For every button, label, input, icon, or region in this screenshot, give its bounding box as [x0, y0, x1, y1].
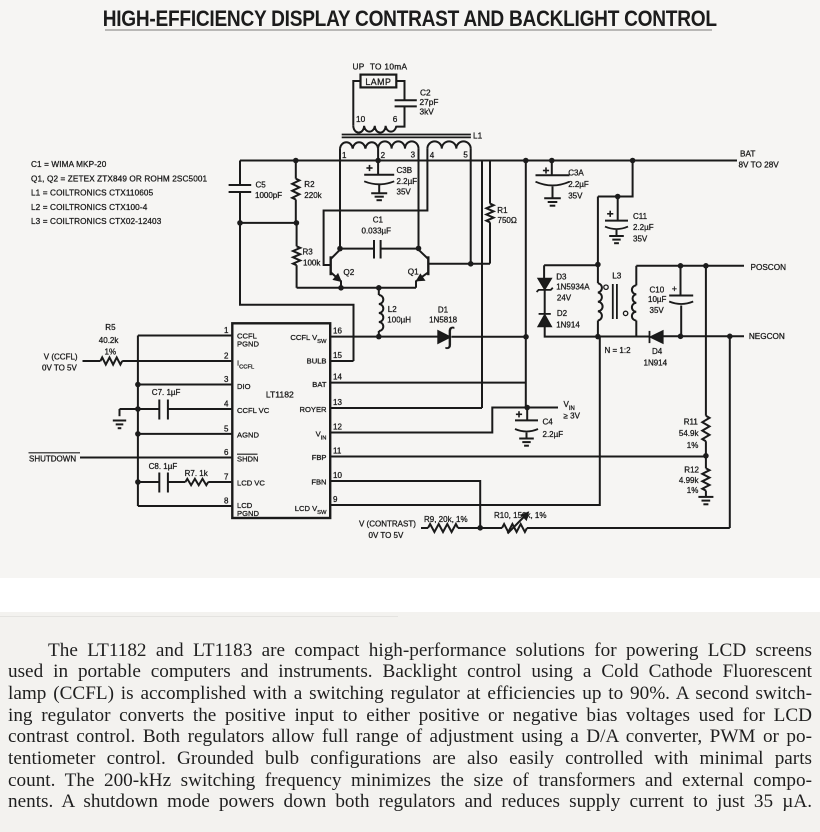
- svg-text:40.2k: 40.2k: [99, 336, 120, 345]
- svg-text:100k: 100k: [303, 258, 321, 267]
- svg-text:6: 6: [224, 448, 229, 457]
- svg-text:R7. 1k: R7. 1k: [185, 469, 209, 478]
- svg-text:R5: R5: [105, 323, 116, 332]
- svg-text:L3 = COILTRONICS CTX02-12403: L3 = COILTRONICS CTX02-12403: [31, 217, 162, 226]
- svg-text:750Ω: 750Ω: [498, 216, 517, 225]
- svg-text:35V: 35V: [633, 235, 648, 244]
- svg-text:9: 9: [333, 495, 338, 504]
- svg-text:1: 1: [342, 151, 347, 160]
- svg-text:2.2µF: 2.2µF: [568, 180, 589, 189]
- svg-text:L3: L3: [612, 272, 622, 281]
- svg-text:BAT: BAT: [740, 150, 755, 159]
- svg-text:R3: R3: [303, 247, 314, 256]
- svg-text:11: 11: [333, 447, 342, 456]
- svg-text:C3B: C3B: [397, 166, 413, 175]
- svg-text:NEGCON: NEGCON: [749, 332, 785, 341]
- svg-text:2.2µF: 2.2µF: [543, 430, 564, 439]
- svg-text:Q2: Q2: [343, 268, 354, 277]
- svg-text:V (CONTRAST): V (CONTRAST): [359, 519, 416, 528]
- svg-text:13: 13: [333, 398, 342, 407]
- svg-text:54.9k: 54.9k: [679, 429, 700, 438]
- svg-text:SHUTDOWN: SHUTDOWN: [29, 455, 76, 464]
- svg-text:8V TO 28V: 8V TO 28V: [739, 161, 780, 170]
- svg-text:8: 8: [224, 497, 229, 506]
- svg-text:C5: C5: [256, 180, 267, 189]
- svg-text:LAMP: LAMP: [365, 77, 391, 87]
- svg-text:5: 5: [224, 424, 229, 433]
- svg-text:PGND: PGND: [237, 509, 259, 518]
- svg-text:12: 12: [333, 423, 342, 432]
- svg-text:4.99k: 4.99k: [679, 476, 700, 485]
- svg-text:1000pF: 1000pF: [255, 191, 282, 200]
- svg-text:1N5818: 1N5818: [429, 316, 458, 325]
- svg-text:BULB: BULB: [307, 357, 327, 366]
- svg-text:4: 4: [430, 151, 435, 160]
- svg-text:35V: 35V: [568, 192, 583, 201]
- svg-text:UP TO 10mA: UP TO 10mA: [353, 62, 408, 72]
- svg-text:D1: D1: [438, 306, 449, 315]
- svg-text:220k: 220k: [304, 191, 322, 200]
- svg-text:C4: C4: [543, 418, 554, 427]
- svg-text:FBN: FBN: [311, 477, 326, 486]
- svg-text:FBP: FBP: [312, 453, 327, 462]
- svg-text:LCD VSW: LCD VSW: [295, 504, 327, 516]
- svg-text:0.033µF: 0.033µF: [362, 226, 392, 235]
- svg-text:L1 = COILTRONICS CTX110605: L1 = COILTRONICS CTX110605: [31, 189, 154, 198]
- svg-text:C11: C11: [633, 212, 648, 221]
- svg-text:1N914: 1N914: [556, 320, 580, 329]
- svg-text:16: 16: [333, 327, 342, 336]
- svg-text:27pF: 27pF: [420, 97, 439, 107]
- svg-text:VIN: VIN: [564, 400, 575, 412]
- svg-text:2.2µF: 2.2µF: [397, 177, 418, 186]
- svg-text:L2: L2: [388, 305, 397, 314]
- svg-text:D2: D2: [557, 309, 568, 318]
- svg-text:Q1: Q1: [408, 267, 419, 276]
- svg-text:D3: D3: [556, 273, 567, 282]
- svg-text:R2: R2: [304, 180, 315, 189]
- svg-text:C10: C10: [650, 285, 665, 294]
- svg-text:1: 1: [224, 326, 229, 335]
- svg-text:C3A: C3A: [568, 169, 584, 178]
- svg-text:POSCON: POSCON: [751, 263, 787, 272]
- svg-text:R1: R1: [497, 206, 508, 215]
- svg-text:CCFL VC: CCFL VC: [237, 406, 270, 415]
- svg-text:C2: C2: [420, 87, 431, 97]
- svg-text:6: 6: [393, 114, 398, 124]
- svg-text:1N5934A: 1N5934A: [556, 283, 590, 292]
- svg-text:3: 3: [224, 375, 229, 384]
- svg-text:10: 10: [356, 114, 366, 124]
- svg-text:1N914: 1N914: [644, 358, 668, 367]
- svg-text:35V: 35V: [397, 187, 412, 196]
- svg-text:0V TO 5V: 0V TO 5V: [369, 531, 405, 540]
- svg-text:4: 4: [224, 400, 229, 409]
- svg-text:AGND: AGND: [237, 431, 259, 440]
- svg-text:1%: 1%: [687, 441, 699, 450]
- svg-text:D4: D4: [652, 347, 663, 356]
- svg-text:PGND: PGND: [237, 339, 259, 348]
- svg-text:2: 2: [224, 352, 229, 361]
- svg-text:R10, 150k, 1%: R10, 150k, 1%: [494, 511, 546, 520]
- svg-text:SHDN: SHDN: [237, 454, 259, 463]
- svg-text:C1 = WIMA MKP-20: C1 = WIMA MKP-20: [31, 160, 107, 169]
- svg-text:100µH: 100µH: [387, 315, 411, 324]
- svg-text:14: 14: [333, 373, 342, 382]
- svg-text:C8. 1µF: C8. 1µF: [149, 462, 178, 471]
- svg-text:CCFL VSW: CCFL VSW: [290, 333, 327, 345]
- svg-text:2.2µF: 2.2µF: [633, 223, 654, 232]
- svg-text:L1: L1: [473, 130, 483, 140]
- svg-text:LCD VC: LCD VC: [237, 478, 265, 487]
- svg-text:24V: 24V: [557, 293, 572, 302]
- svg-text:+: +: [672, 284, 677, 294]
- svg-text:R9, 20k, 1%: R9, 20k, 1%: [424, 515, 468, 524]
- svg-text:3kV: 3kV: [420, 106, 435, 116]
- svg-text:1%: 1%: [105, 347, 117, 356]
- svg-text:1%: 1%: [687, 486, 699, 495]
- svg-text:R12: R12: [684, 465, 699, 474]
- svg-text:R11: R11: [684, 418, 699, 427]
- svg-text:2: 2: [381, 151, 386, 160]
- svg-text:Q1, Q2 = ZETEX ZTX849 OR ROHM: Q1, Q2 = ZETEX ZTX849 OR ROHM 2SC5001: [31, 174, 208, 183]
- svg-text:ROYER: ROYER: [299, 405, 327, 414]
- svg-text:10: 10: [333, 471, 342, 480]
- svg-text:3: 3: [411, 150, 416, 159]
- svg-text:C7. 1µF: C7. 1µF: [152, 388, 181, 397]
- svg-text:35V: 35V: [650, 306, 665, 315]
- svg-text:15: 15: [333, 351, 342, 360]
- svg-text:≥ 3V: ≥ 3V: [564, 411, 581, 420]
- svg-text:ICCFL: ICCFL: [237, 358, 255, 370]
- svg-text:VIN: VIN: [316, 429, 327, 441]
- svg-text:7: 7: [224, 473, 229, 482]
- svg-text:C1: C1: [373, 215, 384, 224]
- svg-text:N = 1:2: N = 1:2: [605, 346, 632, 355]
- svg-text:BAT: BAT: [312, 380, 327, 389]
- svg-text:V (CCFL): V (CCFL): [44, 352, 78, 361]
- svg-text:5: 5: [463, 150, 468, 159]
- svg-text:DIO: DIO: [237, 382, 251, 391]
- svg-text:0V TO 5V: 0V TO 5V: [42, 363, 78, 372]
- svg-text:L2 = COILTRONICS CTX100-4: L2 = COILTRONICS CTX100-4: [31, 203, 148, 212]
- svg-text:10µF: 10µF: [648, 295, 667, 304]
- svg-text:LT1182: LT1182: [266, 390, 294, 400]
